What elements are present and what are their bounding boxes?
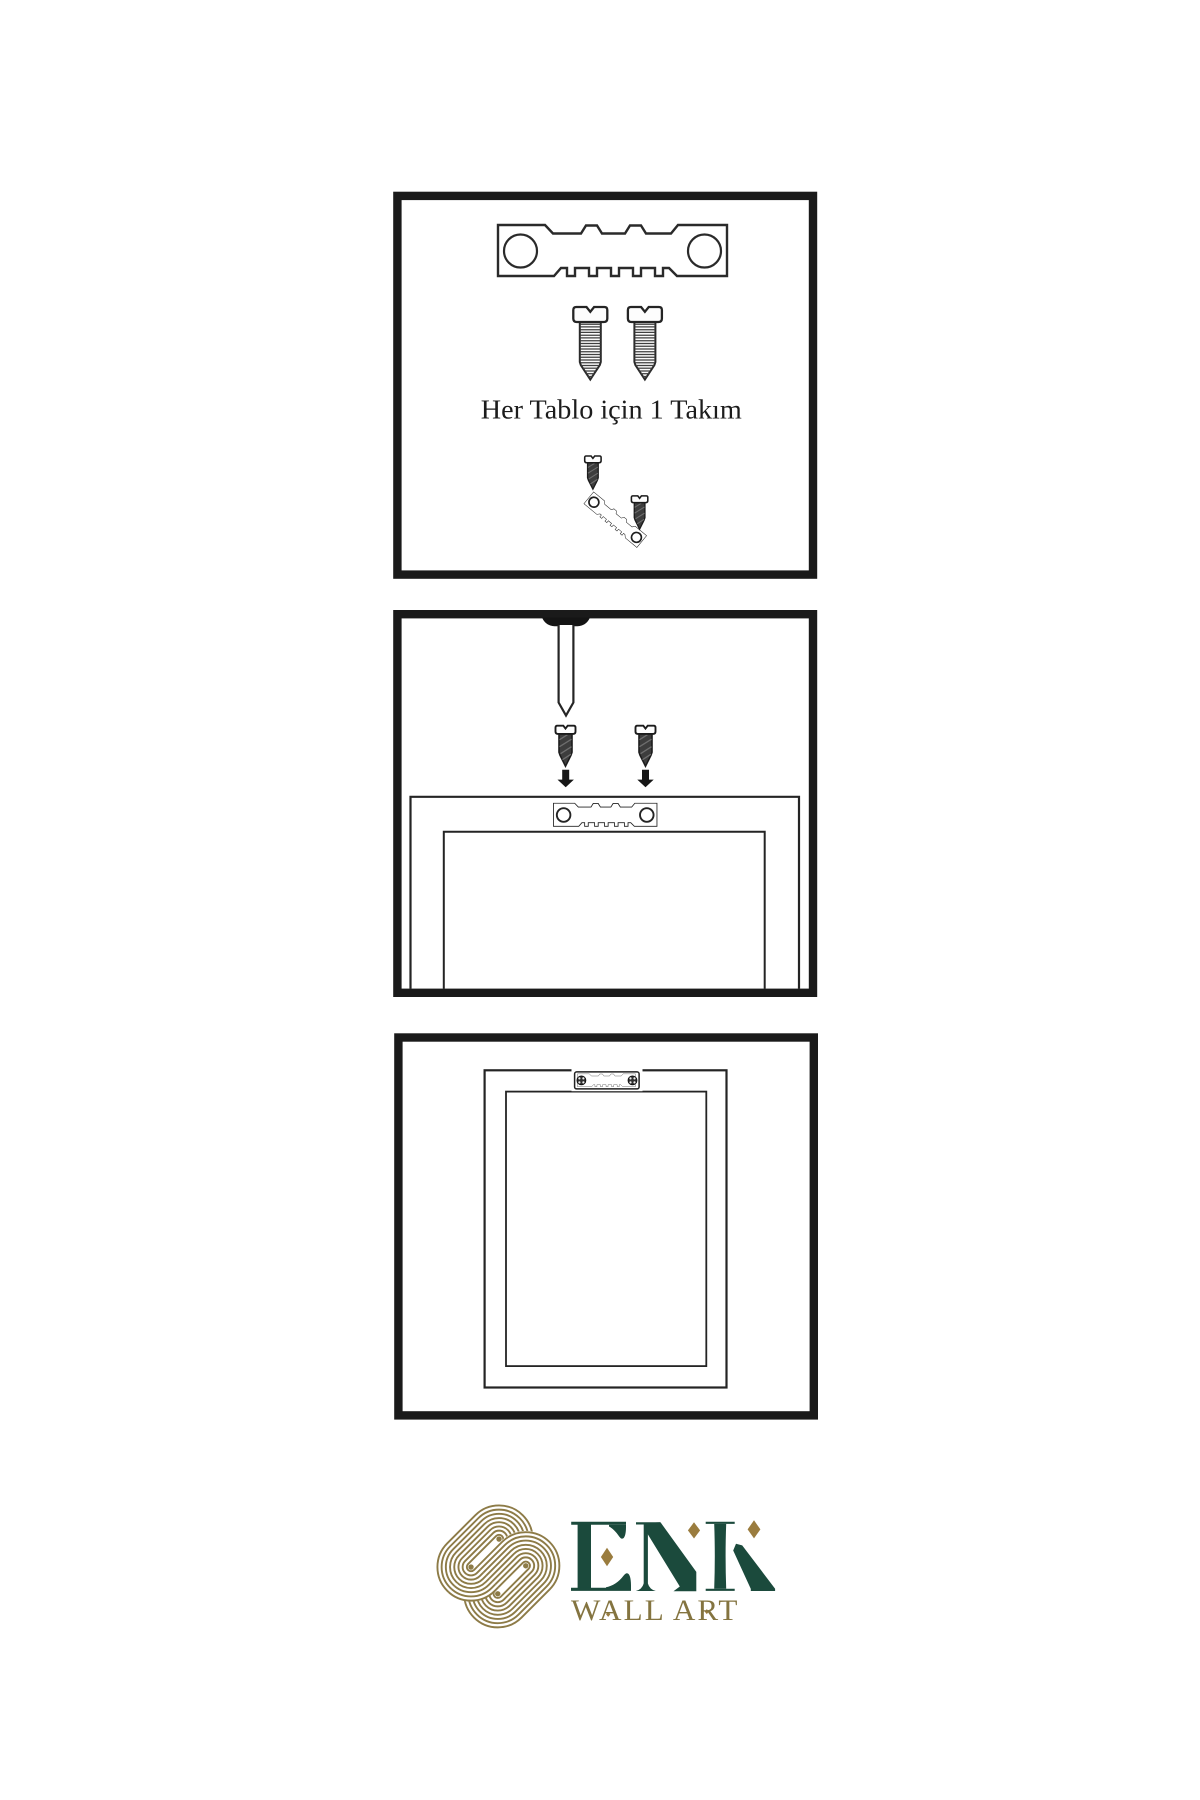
svg-text:WALL ART: WALL ART bbox=[571, 1594, 740, 1627]
svg-text:Her Tablo için 1 Takım: Her Tablo için 1 Takım bbox=[481, 395, 742, 425]
